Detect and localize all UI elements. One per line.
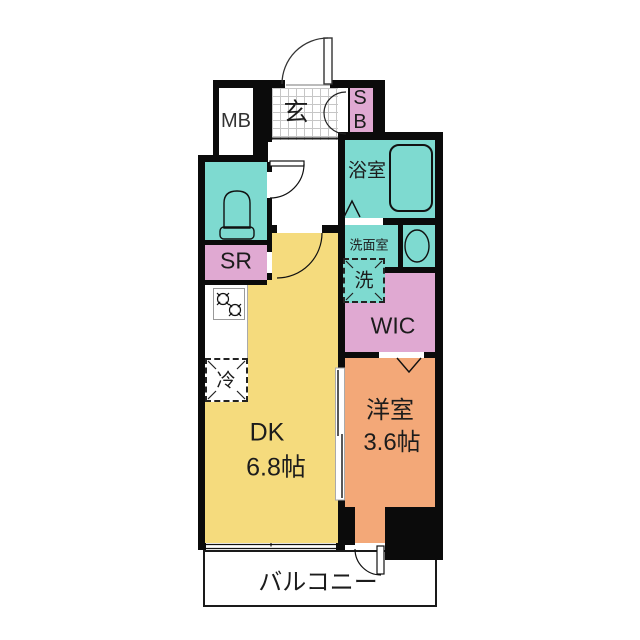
- floorplan-symbols: [0, 0, 640, 640]
- dk-window-icon: [206, 543, 336, 549]
- refrigerator-label: 冷: [216, 372, 235, 391]
- washer-label: 洗: [354, 272, 373, 291]
- dk-label: DK: [250, 421, 285, 446]
- washroom-label: 洗面室: [349, 239, 388, 252]
- western-room-size-label: 3.6帖: [363, 431, 420, 455]
- bathtub-icon: [390, 145, 432, 211]
- dk-door-icon: [277, 233, 322, 278]
- toilet-door-icon: [270, 161, 304, 198]
- western-room-label: 洋室: [366, 399, 414, 423]
- entrance-label: 玄: [283, 101, 308, 126]
- meter-box-label: MB: [221, 111, 251, 131]
- sink-icon: [405, 230, 429, 262]
- toilet-icon: [220, 191, 254, 239]
- stove-icon: [211, 287, 247, 322]
- bathroom-folding-door-icon: [344, 201, 360, 217]
- balcony-label: バルコニー: [258, 571, 378, 595]
- storage-sr-label: SR: [220, 250, 252, 273]
- wic-folding-door-icon: [397, 358, 421, 372]
- shoebox-door-icon: [324, 92, 346, 134]
- shoe-box-label-b: B: [353, 112, 366, 132]
- sliding-door-icon: [336, 368, 345, 500]
- shoe-box-label-s: S: [353, 88, 366, 108]
- entrance-door-icon: [282, 38, 332, 85]
- wic-label: WIC: [371, 315, 416, 338]
- dk-size-label: 6.8帖: [246, 456, 306, 481]
- bathroom-label: 浴室: [348, 162, 386, 181]
- floor-plan: MB 玄 S B 浴室 洗面室 洗 SR WIC 冷 DK 6.8帖 洋室 3.…: [0, 0, 640, 640]
